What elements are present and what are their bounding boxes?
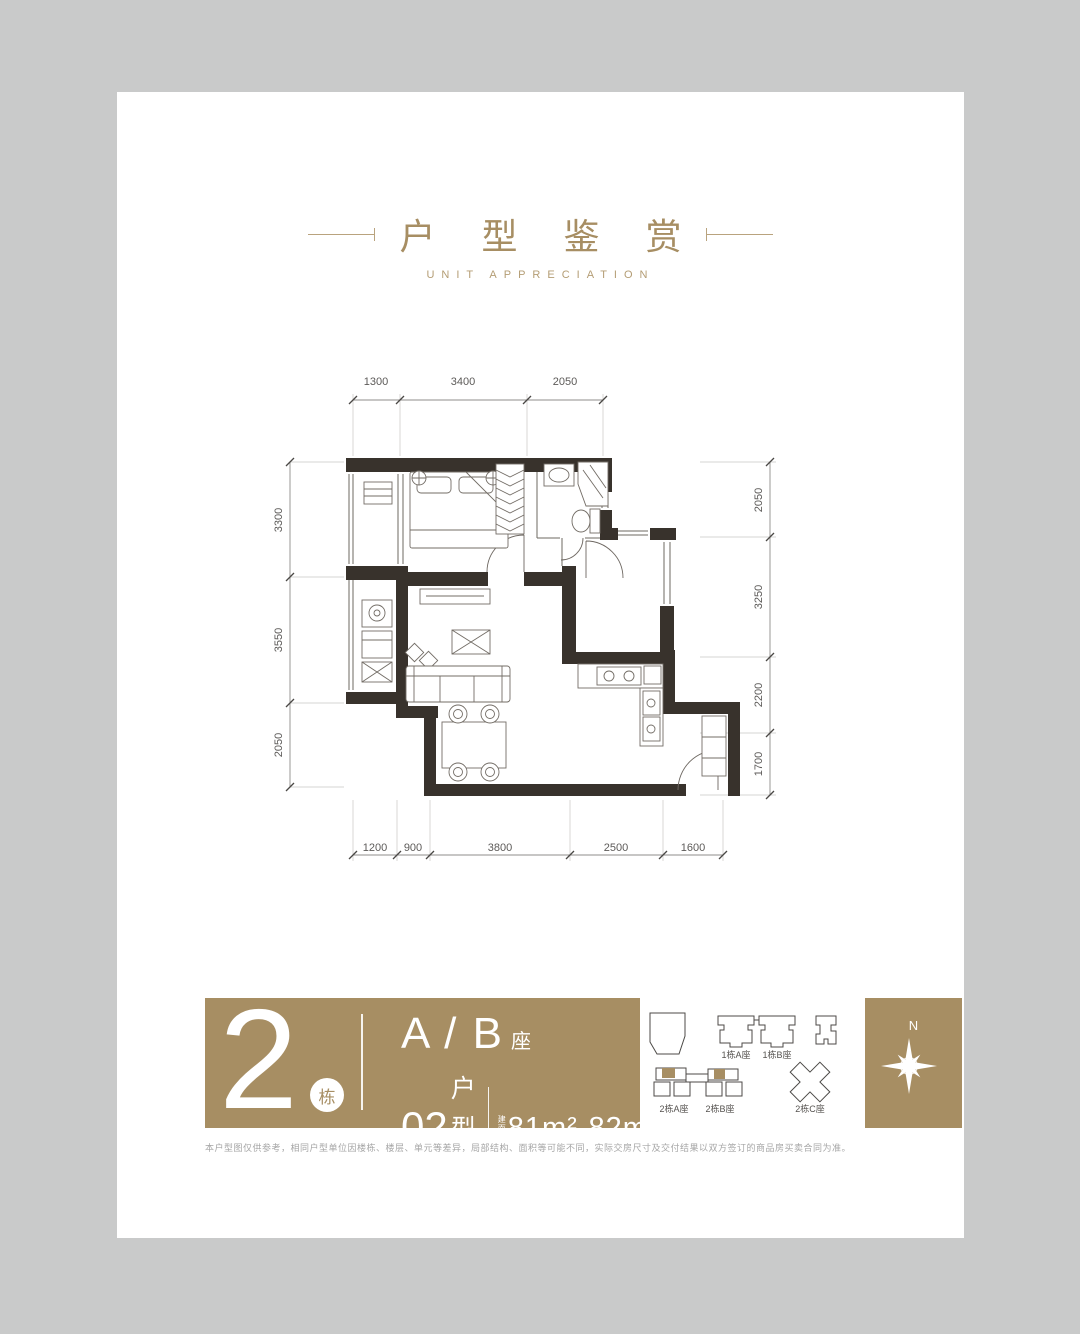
floor-plan: 1300 3400 2050 1200 900 3800 2500 1600 3… <box>250 370 820 880</box>
site-map-label: 2栋A座 <box>659 1102 688 1115</box>
divider-thin <box>488 1087 489 1131</box>
page-subtitle: UNIT APPRECIATION <box>117 269 964 281</box>
building-outline <box>686 1074 708 1082</box>
building-number: 2 <box>219 992 298 1128</box>
building-outline <box>706 1082 722 1096</box>
dimension-label: 1700 <box>752 734 766 794</box>
bathroom-fixtures <box>544 462 608 533</box>
building-outline <box>726 1082 742 1096</box>
living-room-furniture <box>405 589 510 702</box>
building-suffix: 栋 <box>319 1083 336 1108</box>
dimension-label: 900 <box>383 841 443 855</box>
title-ornament-right <box>706 228 773 241</box>
dimension-label: 3550 <box>272 610 286 670</box>
building-outline <box>816 1016 836 1044</box>
highlighted-unit <box>714 1069 725 1079</box>
entry-cabinet <box>702 716 726 776</box>
wardrobe <box>496 464 524 534</box>
site-map-label: 2栋C座 <box>795 1102 825 1115</box>
compass-icon <box>865 998 962 1128</box>
building-outline <box>718 1016 754 1047</box>
site-map-label: 1栋B座 <box>762 1048 791 1061</box>
building-outline <box>759 1016 795 1047</box>
dimension-label: 3250 <box>752 567 766 627</box>
outer-background: 户 型 鉴 赏 UNIT APPRECIATION <box>0 0 1080 1334</box>
unit-summary-panel: 2 栋 A / B座 02 户型 建面约 81m²-82m² <box>205 998 640 1128</box>
site-map-label: 1栋A座 <box>721 1048 750 1061</box>
page-title: 户 型 鉴 赏 <box>399 208 699 260</box>
dimension-label: 3400 <box>433 375 493 389</box>
info-bar: 2 栋 A / B座 02 户型 建面约 81m²-82m² <box>205 998 962 1128</box>
dimension-label: 1300 <box>346 375 406 389</box>
dining-set <box>442 705 506 781</box>
disclaimer-text: 本户型图仅供参考，相同户型单位因楼栋、楼层、单元等差异，局部结构、面积等可能不同… <box>205 1142 895 1154</box>
unit-number-suffix: 户型 <box>451 1069 478 1149</box>
building-outline <box>650 1013 685 1054</box>
walls <box>346 458 740 796</box>
dimension-label: 2050 <box>752 470 766 530</box>
floor-plan-drawing <box>250 370 820 880</box>
highlighted-unit <box>662 1068 675 1078</box>
dimension-label: 3800 <box>470 841 530 855</box>
dimension-label: 2050 <box>535 375 595 389</box>
compass-panel: N <box>865 998 962 1128</box>
building-suffix-badge: 栋 <box>310 1078 344 1112</box>
title-ornament-left <box>308 228 375 241</box>
dimension-label: 2050 <box>272 715 286 775</box>
title-block: 户 型 鉴 赏 UNIT APPRECIATION <box>117 208 964 281</box>
dimension-label: 2200 <box>752 665 766 725</box>
site-map-panel: 1栋A座 1栋B座 2栋A座 2栋B座 2栋C座 <box>640 998 865 1128</box>
ac-unit <box>364 482 392 504</box>
building-outline <box>674 1082 690 1096</box>
dimension-label: 2500 <box>586 841 646 855</box>
balcony-appliances <box>362 600 392 682</box>
unit-info: A / B座 02 户型 建面约 81m²-82m² <box>401 1010 659 1149</box>
dimension-label: 3300 <box>272 490 286 550</box>
divider <box>361 1014 363 1110</box>
dimension-label: 1600 <box>663 841 723 855</box>
block-label: A / B <box>401 1009 504 1058</box>
building-outline <box>654 1082 670 1096</box>
brochure-page: 户 型 鉴 赏 UNIT APPRECIATION <box>117 92 964 1238</box>
block-suffix: 座 <box>511 1031 531 1053</box>
kitchen-fixtures <box>578 664 663 746</box>
bed <box>410 471 508 548</box>
site-map-label: 2栋B座 <box>705 1102 734 1115</box>
